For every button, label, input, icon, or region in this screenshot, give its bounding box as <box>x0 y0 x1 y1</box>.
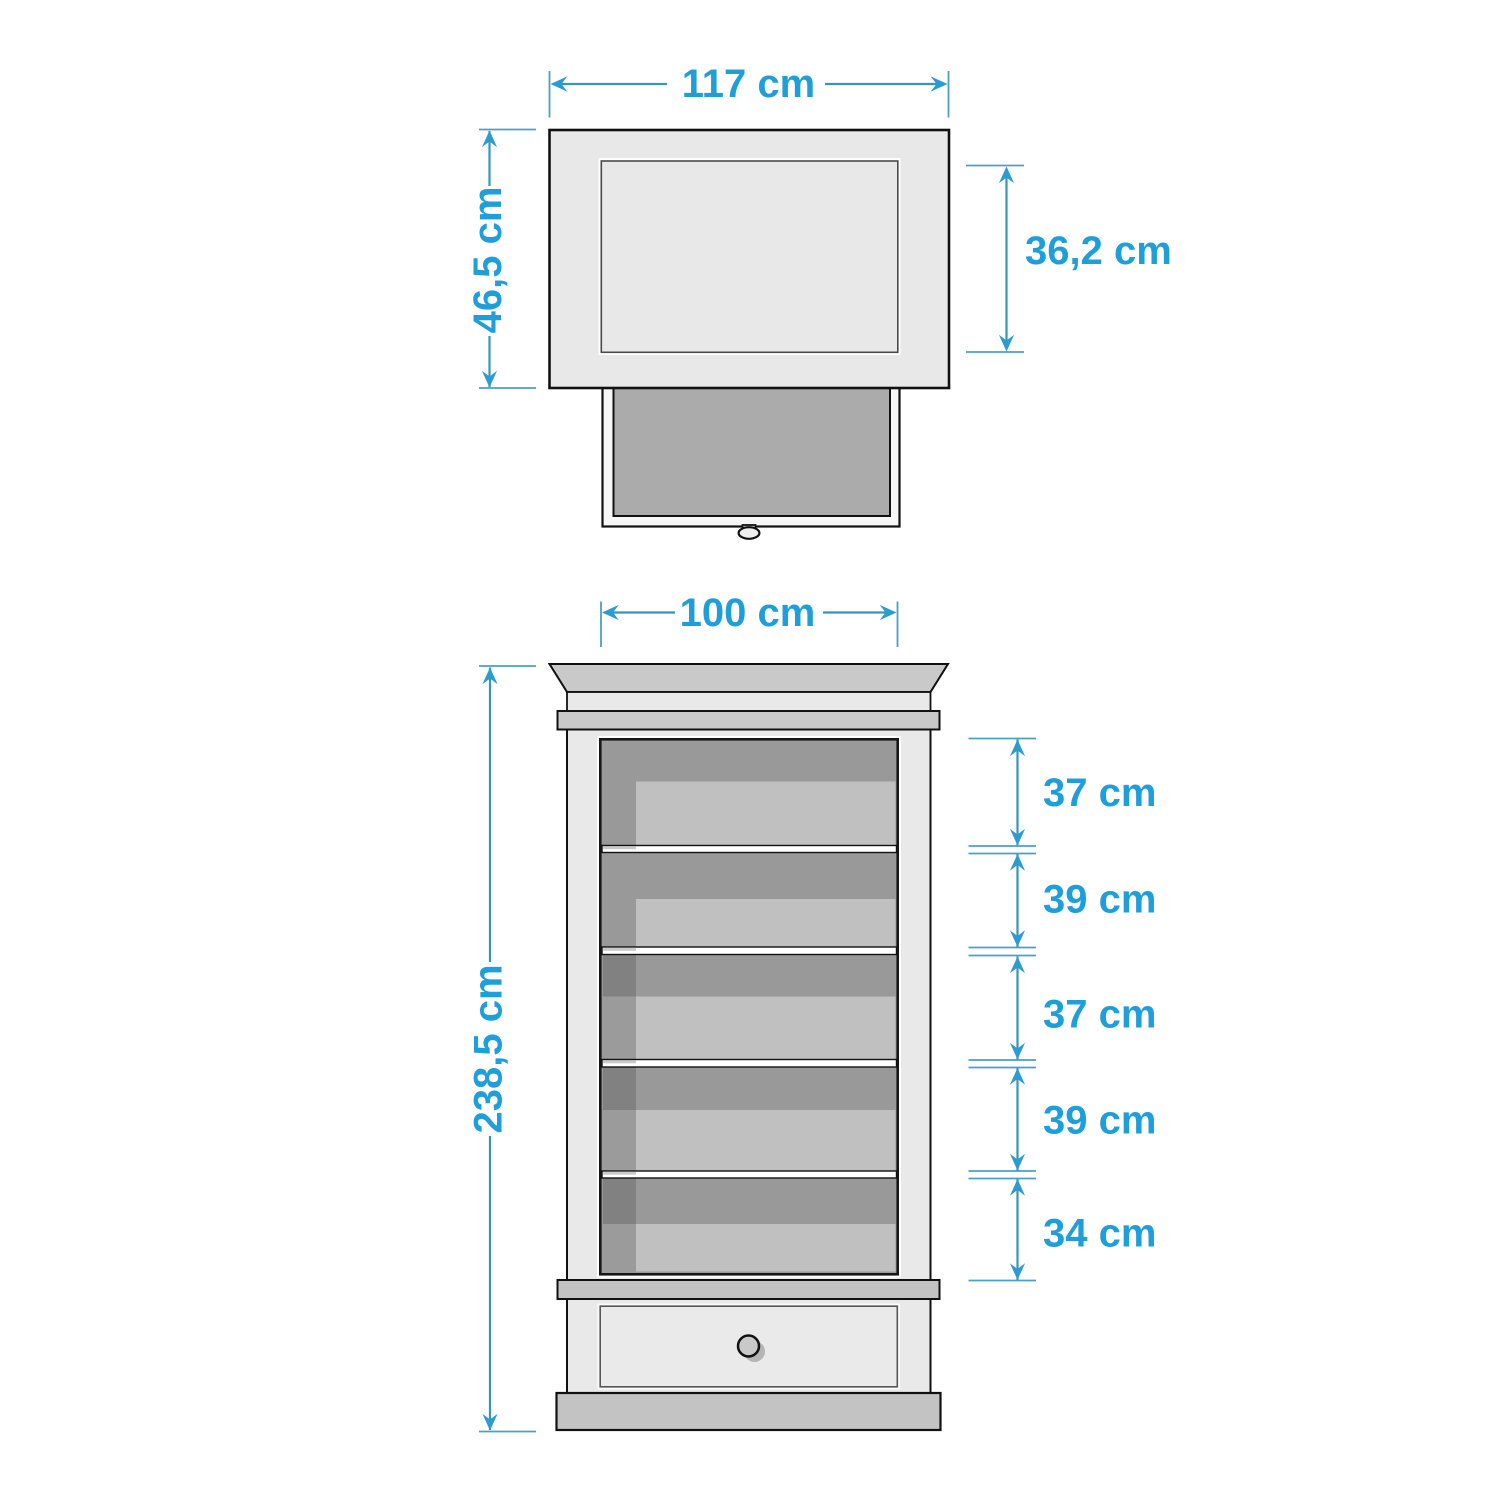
svg-text:37 cm: 37 cm <box>1043 771 1156 815</box>
svg-text:37 cm: 37 cm <box>1043 993 1156 1037</box>
svg-text:34 cm: 34 cm <box>1043 1212 1156 1256</box>
svg-text:39 cm: 39 cm <box>1043 1099 1156 1143</box>
svg-text:46,5 cm: 46,5 cm <box>466 187 510 334</box>
svg-text:100 cm: 100 cm <box>680 591 816 635</box>
svg-text:36,2 cm: 36,2 cm <box>1025 229 1172 273</box>
svg-text:39 cm: 39 cm <box>1043 878 1156 922</box>
svg-text:238,5 cm: 238,5 cm <box>467 964 511 1133</box>
svg-text:117 cm: 117 cm <box>682 62 815 106</box>
